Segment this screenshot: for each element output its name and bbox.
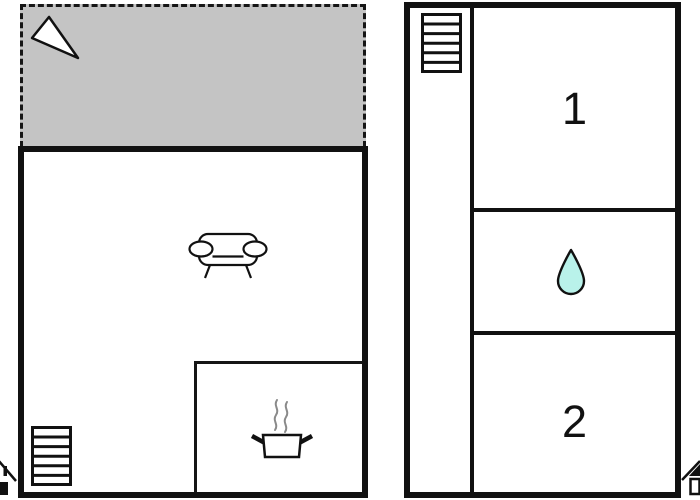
room-2-label: 2 <box>474 335 675 495</box>
stairs-icon-left-unit <box>31 426 72 486</box>
house-marker-icon-right <box>681 456 700 498</box>
wall-room1-bathroom <box>474 208 675 212</box>
room-1-label: 1 <box>474 8 675 208</box>
floor-plan-canvas: 1 2 <box>0 0 700 500</box>
north-arrow-icon <box>28 12 84 64</box>
sofa-icon <box>186 226 270 282</box>
cooking-pot-icon <box>246 395 318 461</box>
water-drop-icon <box>555 248 587 296</box>
house-marker-icon-left <box>0 456 18 498</box>
stairs-icon-right-unit <box>421 13 462 73</box>
